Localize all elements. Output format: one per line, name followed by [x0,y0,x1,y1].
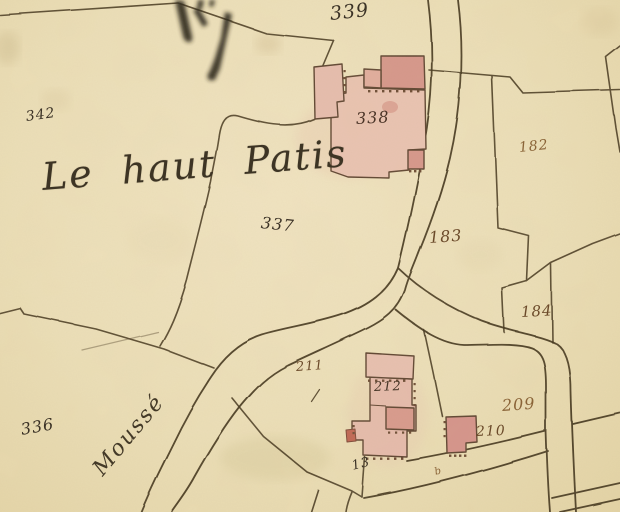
map-drawing [0,0,620,512]
building-210 [444,416,478,457]
parcel-number-339: 339 [329,1,370,24]
parcel-number-210: 210 [476,424,506,439]
parcel-number-337: 337 [260,215,295,234]
parcel-number-183: 183 [428,228,463,246]
cadastral-map[interactable]: Le haut Patis Moussé 342 339 338 337 336… [0,0,620,512]
parcel-number-212: 212 [374,380,402,394]
parcel-number-342: 342 [25,106,56,124]
parcel-number-209: 209 [501,396,536,414]
parcel-number-184: 184 [521,303,553,320]
parcel-number-338: 338 [356,109,390,127]
parcel-number-211: 211 [296,359,325,374]
parcel-number-182: 182 [518,138,549,155]
